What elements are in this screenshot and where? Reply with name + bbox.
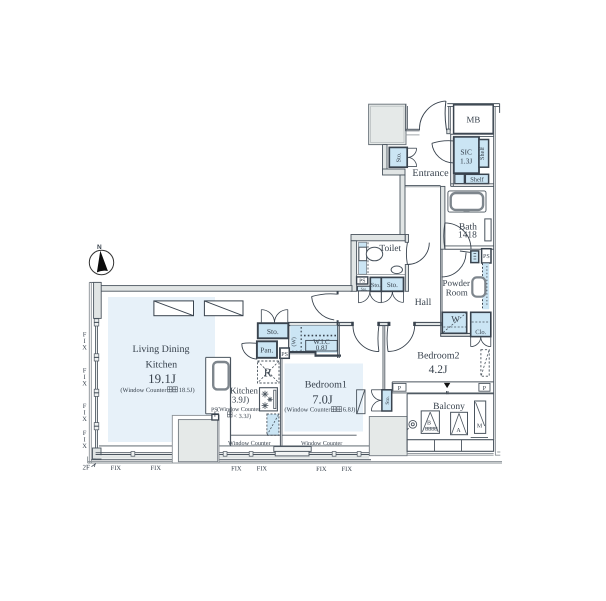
svg-text:X: X — [82, 416, 87, 423]
svg-text:Powder: Powder — [443, 278, 471, 288]
svg-text:Toilet: Toilet — [379, 244, 401, 254]
svg-text:Window Counter: Window Counter — [301, 440, 342, 447]
svg-text:< 3.3J): < 3.3J) — [234, 413, 252, 420]
svg-text:Sto.: Sto. — [387, 281, 398, 289]
svg-text:PS: PS — [483, 254, 490, 260]
svg-text:Sto.: Sto. — [267, 327, 279, 336]
svg-text:M: M — [477, 424, 483, 430]
svg-text:FIX: FIX — [111, 465, 122, 472]
svg-text:4.2J: 4.2J — [429, 364, 448, 376]
svg-text:3.9J): 3.9J) — [232, 395, 249, 405]
svg-text:Bedroom1: Bedroom1 — [305, 379, 347, 390]
svg-text:Room: Room — [446, 288, 468, 298]
svg-text:18.5J): 18.5J) — [179, 387, 195, 394]
svg-text:P: P — [398, 385, 402, 392]
svg-text:Kitchen: Kitchen — [145, 359, 177, 370]
svg-text:2F: 2F — [82, 464, 90, 472]
svg-text:X: X — [82, 345, 87, 352]
svg-text:6.8J): 6.8J) — [343, 407, 356, 414]
svg-text:(Window Counter: (Window Counter — [284, 407, 331, 414]
svg-text:SIC: SIC — [460, 147, 472, 156]
svg-text:Living Dining: Living Dining — [133, 344, 190, 355]
svg-text:FIX: FIX — [257, 465, 268, 472]
svg-text:W: W — [451, 314, 460, 324]
svg-text:(W): (W) — [290, 337, 297, 346]
svg-text:Clo.: Clo. — [475, 329, 486, 336]
svg-text:FIX: FIX — [316, 466, 327, 473]
svg-text:1.3J: 1.3J — [460, 156, 472, 165]
svg-text:A: A — [456, 428, 461, 434]
svg-text:Shelf: Shelf — [470, 177, 484, 184]
svg-text:Entrance: Entrance — [412, 168, 449, 179]
svg-text:B: B — [427, 421, 431, 427]
svg-text:MB: MB — [467, 115, 481, 125]
svg-text:Pan.: Pan. — [260, 345, 273, 354]
svg-text:FIX: FIX — [342, 466, 353, 473]
svg-text:Hall: Hall — [415, 297, 432, 308]
svg-text:FIX: FIX — [231, 465, 242, 472]
svg-text:FIX: FIX — [151, 465, 162, 472]
svg-text:Bedroom2: Bedroom2 — [417, 350, 459, 361]
svg-text:Sto.: Sto. — [395, 152, 402, 162]
svg-text:N: N — [97, 244, 102, 251]
svg-text:Shelf: Shelf — [479, 146, 486, 160]
svg-text:X: X — [82, 443, 87, 450]
svg-text:PS: PS — [359, 279, 365, 285]
svg-text:7.0J: 7.0J — [312, 392, 333, 406]
svg-text:R: R — [264, 366, 272, 380]
svg-text:(Window Counter: (Window Counter — [217, 406, 260, 413]
svg-text:(Window Counter: (Window Counter — [120, 387, 167, 394]
svg-text:0.8J: 0.8J — [316, 344, 328, 352]
svg-text:Window Counter: Window Counter — [228, 440, 271, 447]
svg-text:P: P — [483, 385, 487, 392]
svg-text:19.1J: 19.1J — [148, 371, 176, 386]
svg-text:Sto.: Sto. — [371, 282, 381, 289]
svg-text:Sto.: Sto. — [361, 286, 368, 291]
svg-text:Sto.: Sto. — [385, 396, 391, 405]
svg-text:X: X — [82, 381, 87, 388]
svg-text:PS: PS — [281, 352, 288, 358]
